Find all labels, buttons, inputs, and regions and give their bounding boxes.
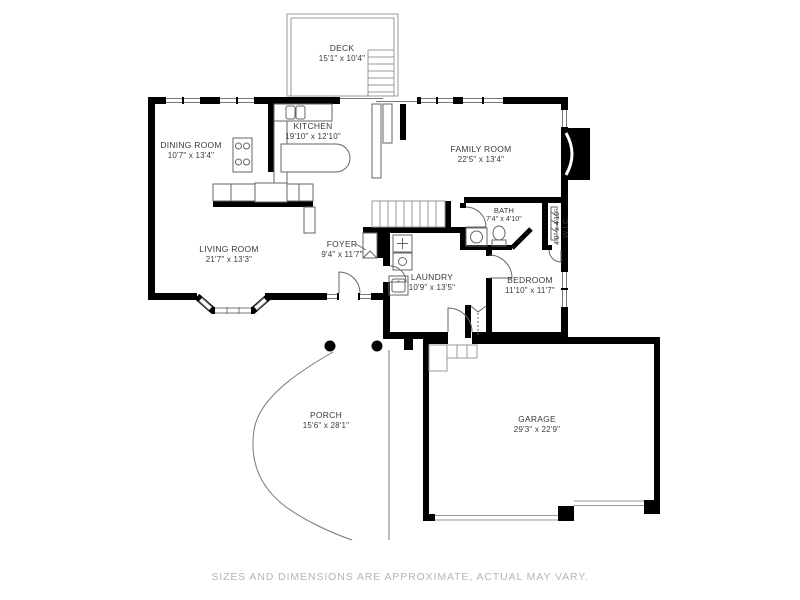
- garage-steps-icon: [429, 345, 477, 371]
- washer-icon: [393, 235, 412, 252]
- closet-bifold-door-icon: [471, 306, 486, 312]
- room-dims-family-room: 22'5" x 13'4": [458, 155, 504, 164]
- pantry-cabinet-icon-2: [383, 104, 392, 143]
- kitchen-counter-return: [304, 207, 315, 233]
- kitchen-island: [281, 144, 350, 172]
- refrigerator-icon: [255, 183, 287, 202]
- foyer-closet: [363, 233, 377, 258]
- toilet-icon: [492, 226, 506, 246]
- deck-stairs-icon: [368, 50, 394, 96]
- fireplace-icon: [561, 128, 590, 180]
- bath-door-arc-icon: [466, 207, 486, 227]
- floor-plan-page: DECK 15'1" x 10'4" KITCHEN 19'10" x 12'1…: [0, 0, 800, 600]
- room-dims-foyer: 9'4" x 11'7": [321, 250, 362, 259]
- room-label-kitchen: KITCHEN: [293, 121, 332, 131]
- wic-door-arc-icon: [549, 250, 561, 262]
- utility-sink-icon: [389, 276, 408, 295]
- bath-fixtures: [466, 226, 506, 246]
- room-label-dining-room: DINING ROOM: [160, 140, 221, 150]
- room-dims-laundry: 10'9" x 13'5": [409, 283, 455, 292]
- room-label-garage: GARAGE: [518, 414, 556, 424]
- room-dims-bath: 7'4" x 4'10": [486, 216, 522, 223]
- pantry-cabinet-icon: [372, 104, 381, 178]
- disclaimer-text: SIZES AND DIMENSIONS ARE APPROXIMATE, AC…: [211, 571, 588, 583]
- bay-window-icon: [197, 297, 269, 315]
- garage-door-left-icon: [435, 516, 558, 521]
- room-dims-deck: 15'1" x 10'4": [319, 54, 365, 63]
- room-label-deck: DECK: [330, 43, 355, 53]
- stairs-icon: [372, 201, 445, 227]
- porch-column-icon-2: [372, 341, 383, 352]
- kitchen-counter-top: [274, 104, 332, 121]
- bedroom-closet: [471, 306, 486, 336]
- room-label-wic: W.I.C.: [561, 216, 570, 238]
- room-dims-bedroom: 11'10" x 11'7": [505, 286, 555, 295]
- room-label-foyer: FOYER: [327, 239, 358, 249]
- porch: [253, 341, 389, 541]
- porch-column-icon: [325, 341, 336, 352]
- room-label-bath: BATH: [494, 206, 514, 215]
- front-door-arc-icon: [339, 272, 360, 293]
- cooktop-icon: [233, 138, 252, 172]
- window-icons-front: [327, 295, 371, 299]
- floor-plan: DECK 15'1" x 10'4" KITCHEN 19'10" x 12'1…: [0, 0, 800, 600]
- sliding-door-icon: [340, 99, 417, 102]
- garage-door-right-icon: [574, 501, 644, 506]
- room-label-bedroom: BEDROOM: [507, 275, 553, 285]
- room-dims-kitchen: 19'10" x 12'10": [285, 132, 341, 141]
- porch-edge-curve: [253, 352, 352, 540]
- room-dims-porch: 15'6" x 28'1": [303, 421, 349, 430]
- room-dims-wic: 4'0" x 4'10": [554, 209, 561, 245]
- room-dims-dining-room: 10'7" x 13'4": [168, 151, 214, 160]
- room-label-living-room: LIVING ROOM: [199, 244, 258, 254]
- room-dims-living-room: 21'7" x 13'3": [206, 255, 252, 264]
- bath-vanity-icon: [466, 228, 487, 246]
- room-label-laundry: LAUNDRY: [411, 272, 453, 282]
- room-label-family-room: FAMILY ROOM: [450, 144, 511, 154]
- room-label-porch: PORCH: [310, 410, 342, 420]
- room-dims-garage: 29'3" x 22'9": [514, 425, 560, 434]
